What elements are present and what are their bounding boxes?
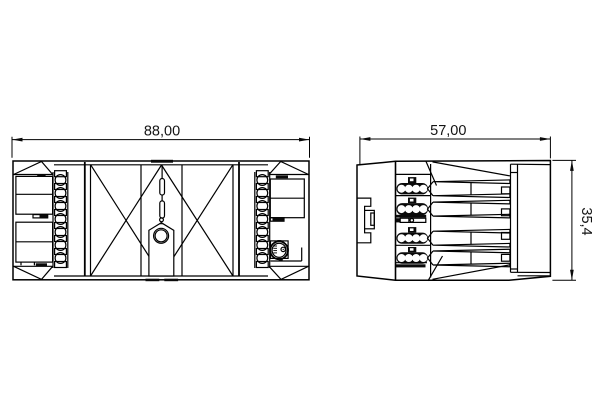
svg-text:35,4: 35,4 (578, 207, 594, 235)
svg-text:88,00: 88,00 (144, 124, 180, 140)
svg-text:57,00: 57,00 (430, 123, 466, 139)
